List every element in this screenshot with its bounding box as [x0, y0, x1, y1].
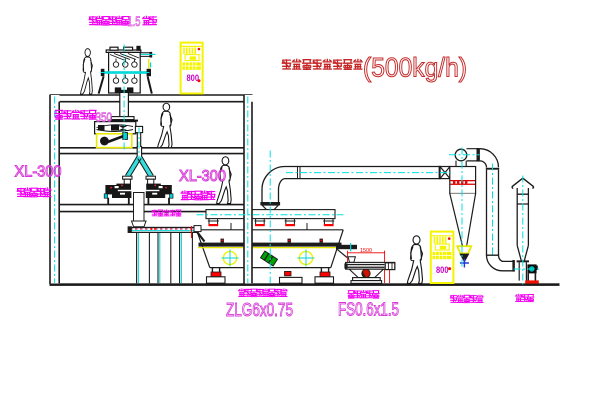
svg-text:XL-300: XL-300 — [179, 168, 226, 185]
svg-text:800: 800 — [187, 73, 200, 83]
svg-text:1500: 1500 — [360, 248, 372, 254]
svg-text:ZLG6x0.75: ZLG6x0.75 — [226, 300, 293, 320]
svg-text:800: 800 — [436, 265, 449, 275]
svg-text:1.5: 1.5 — [128, 13, 141, 29]
svg-text:350: 350 — [96, 110, 113, 125]
svg-text:(500kg/h): (500kg/h) — [363, 53, 467, 83]
svg-text:FS0.6x1.5: FS0.6x1.5 — [338, 299, 399, 319]
svg-text:XL-300: XL-300 — [15, 163, 62, 180]
